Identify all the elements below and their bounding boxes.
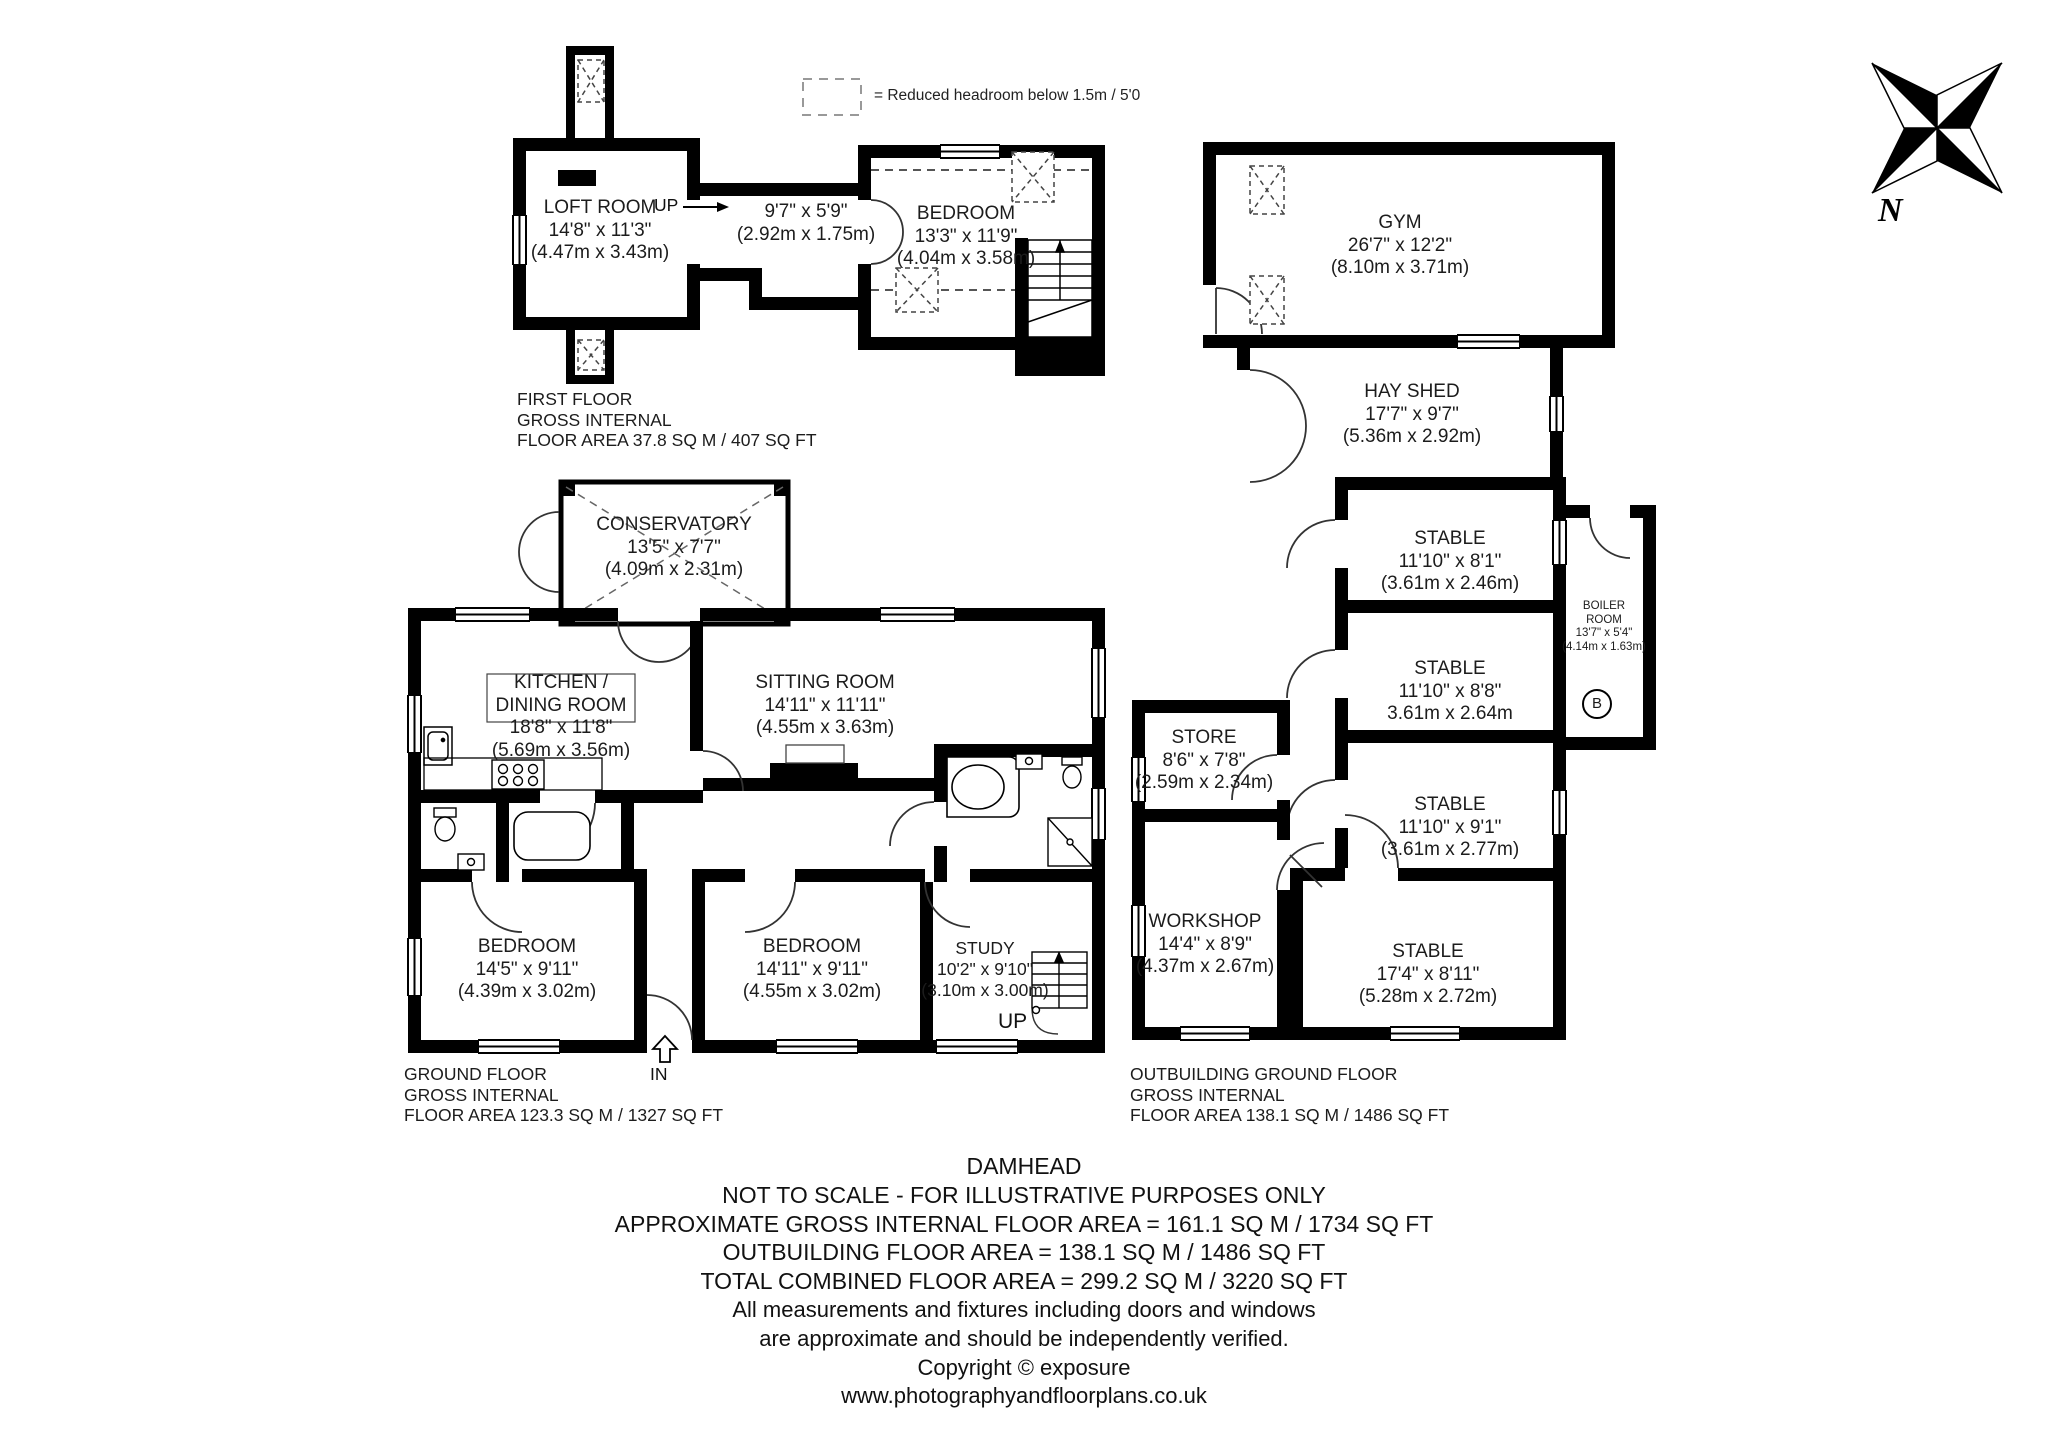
boiler-badge: B [1582,689,1612,719]
room-name: SITTING ROOM [755,672,894,695]
room-name: STABLE [1381,794,1519,817]
room-dims-ft: 11'10" x 8'8" [1387,681,1513,704]
disclaimer-measurements-2: are approximate and should be independen… [0,1325,2048,1354]
room-name: HAY SHED [1343,381,1481,404]
gross-internal: GROSS INTERNAL [404,1085,723,1106]
floor-area: FLOOR AREA 123.3 SQ M / 1327 SQ FT [404,1105,723,1126]
wall-segment [605,46,614,138]
floor-name: OUTBUILDING GROUND FLOOR [1130,1064,1449,1085]
roof-window-icon [1250,276,1284,324]
window [1092,648,1105,718]
window [936,1040,1018,1053]
wall-segment [1237,348,1250,370]
approx-floor-area: APPROXIMATE GROSS INTERNAL FLOOR AREA = … [0,1210,2048,1239]
wall-segment [1602,142,1615,348]
sink-icon [458,854,484,870]
window [455,608,530,621]
up-label: UP [998,1010,1027,1034]
wall-segment [1015,350,1105,376]
room-dims-ft: 14'11" x 9'11" [743,959,881,982]
room-dims-ft: 11'10" x 9'1" [1381,817,1519,840]
wall-segment [1335,743,1348,780]
hearth-outline [786,745,844,763]
room-dims-m: (2.92m x 1.75m) [737,224,875,247]
wall-segment [605,330,614,380]
window [1553,790,1566,835]
kitchen-dining-label: KITCHEN / DINING ROOM 18'8" x 11'8" (5.6… [492,672,630,762]
footer-text: DAMHEAD NOT TO SCALE - FOR ILLUSTRATIVE … [0,1152,2048,1411]
wall-segment [1550,348,1563,396]
wall-segment [934,744,947,802]
window [1553,520,1566,565]
room-name: KITCHEN / [492,672,630,695]
wall-segment [1335,600,1566,613]
wall-segment [1277,800,1290,840]
entrance-arrow-icon [653,1036,677,1062]
wall-segment [692,869,745,882]
window [1390,1027,1460,1040]
window [880,608,955,621]
room-dims-m: (4.55m x 3.02m) [743,981,881,1004]
floor-area: FLOOR AREA 138.1 SQ M / 1486 SQ FT [1130,1105,1449,1126]
fireplace-block [770,763,858,787]
door-arc [472,882,522,932]
room-dims-m: 3.61m x 2.64m [1387,703,1513,726]
floor-name: GROUND FLOOR [404,1064,723,1085]
room-name: STUDY [921,938,1048,959]
room-name: LOFT ROOM [531,197,669,220]
workshop-label: WORKSHOP 14'4" x 8'9" (4.37m x 2.67m) [1136,911,1274,979]
room-name: BOILER [1562,600,1646,614]
room-dims-ft: 26'7" x 12'2" [1331,235,1469,258]
wall-segment [1335,698,1348,730]
room-dims-ft: 11'10" x 8'1" [1381,551,1519,574]
boiler-room-label: BOILER ROOM 13'7" x 5'4" (4.14m x 1.63m) [1562,600,1646,654]
door-arc [1250,426,1306,482]
reduced-headroom-legend: = Reduced headroom below 1.5m / 5'0 [874,87,1140,105]
room-name: CONSERVATORY [596,514,752,537]
wall-segment [1203,335,1457,348]
room-dims-ft: 17'4" x 8'11" [1359,964,1497,987]
door-arc [618,621,659,662]
room-dims-m: (5.36m x 2.92m) [1343,426,1481,449]
toilet-icon [434,808,456,841]
stable4-label: STABLE 17'4" x 8'11" (5.28m x 2.72m) [1359,941,1497,1009]
wall-segment [1277,700,1290,755]
room-name: BEDROOM [743,936,881,959]
door-arc [519,512,559,552]
wall-segment [1335,613,1348,650]
room-dims-m: (4.39m x 3.02m) [458,981,596,1004]
room-name: BEDROOM [458,936,596,959]
wall-segment [595,790,703,803]
wall-segment [1092,145,1105,350]
room-dims-m: (3.10m x 3.00m) [921,980,1048,1001]
outbuilding-area-label: OUTBUILDING GROUND FLOOR GROSS INTERNAL … [1130,1064,1449,1126]
floor-name: FIRST FLOOR [517,389,817,410]
door-arc [1590,518,1630,558]
roof-window-icon [896,268,938,312]
wall-segment [1335,477,1566,490]
stable2-label: STABLE 11'10" x 8'8" 3.61m x 2.64m [1387,658,1513,726]
room-name: DINING ROOM [492,695,630,718]
room-dims-m: (4.37m x 2.67m) [1136,956,1274,979]
room-dims-ft: 10'2" x 9'10" [921,959,1048,980]
loft-room-label: LOFT ROOM 14'8" x 11'3" (4.47m x 3.43m) [531,197,669,265]
door-arc [519,552,559,592]
room-dims-ft: 13'3" x 11'9" [897,226,1035,249]
window [1457,335,1520,348]
wall-segment [687,138,700,200]
room-dims-m: (5.69m x 3.56m) [492,740,630,763]
door-arc [745,882,795,932]
room-dims-m: (4.04m x 3.58m) [897,248,1035,271]
reduced-headroom-symbol [803,79,861,115]
bedroom1-label: BEDROOM 14'5" x 9'11" (4.39m x 3.02m) [458,936,596,1004]
wall-segment [421,869,472,882]
window [776,1040,858,1053]
wall-segment [858,145,871,200]
wall-segment [566,46,575,138]
wall-segment [700,183,870,196]
property-name: DAMHEAD [0,1152,2048,1181]
landing-label: 9'7" x 5'9" (2.92m x 1.75m) [737,201,875,246]
room-dims-m: (4.09m x 2.31m) [596,559,752,582]
room-dims-ft: 13'7" x 5'4" [1562,627,1646,641]
room-name: WORKSHOP [1136,911,1274,934]
window [408,938,421,996]
wall-segment [692,1040,1105,1053]
bathtub-icon [514,812,590,860]
window [1550,396,1563,432]
stable1-label: STABLE 11'10" x 8'1" (3.61m x 2.46m) [1381,528,1519,596]
window [1180,1027,1250,1040]
window [408,695,421,753]
north-label: N [1878,192,1903,230]
wall-segment [858,337,1105,350]
window [940,145,1000,158]
compass-rose-icon [1872,63,2002,193]
bedroom2-label: BEDROOM 14'11" x 9'11" (4.55m x 3.02m) [743,936,881,1004]
up-arrow [683,202,729,212]
toilet-icon [1062,757,1082,788]
store-label: STORE 8'6" x 7'8" (2.59m x 2.34m) [1135,727,1273,795]
room-name: GYM [1331,212,1469,235]
roof-window-icon [1012,152,1054,202]
room-dims-ft: 9'7" x 5'9" [737,201,875,224]
wall-segment [934,846,947,882]
door-arc [1250,370,1306,426]
hay-shed-label: HAY SHED 17'7" x 9'7" (5.36m x 2.92m) [1343,381,1481,449]
wall-segment [1520,335,1615,348]
sitting-room-label: SITTING ROOM 14'11" x 11'11" (4.55m x 3.… [755,672,894,740]
room-name: STABLE [1387,658,1513,681]
kitchen-sink-icon [424,727,452,765]
room-dims-m: (4.55m x 3.63m) [755,717,894,740]
room-name: STABLE [1359,941,1497,964]
wall-segment [692,882,705,1040]
wall-segment [566,330,575,380]
room-name: STORE [1135,727,1273,750]
wall-segment [687,264,700,330]
wall-segment [1335,828,1348,868]
first-floor-area-label: FIRST FLOOR GROSS INTERNAL FLOOR AREA 37… [517,389,817,451]
window [1092,788,1105,840]
website-url: www.photographyandfloorplans.co.uk [0,1382,2048,1411]
disclaimer-measurements-1: All measurements and fixtures including … [0,1296,2048,1325]
wall-segment [522,869,647,882]
wall-segment [1335,477,1348,520]
room-name: ROOM [1562,614,1646,628]
wall-segment [634,882,647,1040]
door-arc [890,802,934,846]
gross-internal: GROSS INTERNAL [517,410,817,431]
wall-segment [970,869,1105,882]
wall-segment [513,138,700,151]
room-dims-ft: 18'8" x 11'8" [492,717,630,740]
stove-icon [492,760,544,789]
total-floor-area: TOTAL COMBINED FLOOR AREA = 299.2 SQ M /… [0,1267,2048,1296]
room-name: STABLE [1381,528,1519,551]
roof-window-icon [1250,166,1284,214]
first-floor-bedroom-label: BEDROOM 13'3" x 11'9" (4.04m x 3.58m) [897,203,1035,271]
room-dims-ft: 14'4" x 8'9" [1136,934,1274,957]
outbuilding-floor-area: OUTBUILDING FLOOR AREA = 138.1 SQ M / 14… [0,1238,2048,1267]
door-arc [1287,780,1335,828]
room-dims-ft: 14'5" x 9'11" [458,959,596,982]
disclaimer-scale: NOT TO SCALE - FOR ILLUSTRATIVE PURPOSES… [0,1181,2048,1210]
wall-segment [421,790,540,803]
wall-segment [690,621,703,751]
floor-area: FLOOR AREA 37.8 SQ M / 407 SQ FT [517,430,817,451]
window [478,1040,560,1053]
up-label: UP [654,195,678,216]
shower-icon [1048,818,1092,866]
wall-segment [1335,730,1566,743]
study-label: STUDY 10'2" x 9'10" (3.10m x 3.00m) [921,938,1048,1001]
door-arc [647,995,692,1040]
room-dims-ft: 14'11" x 11'11" [755,695,894,718]
wall-segment [1203,142,1216,285]
floorplan-canvas: = Reduced headroom below 1.5m / 5'0 N LO… [0,0,2048,1447]
room-dims-ft: 13'5" x 7'7" [596,537,752,560]
room-dims-m: (8.10m x 3.71m) [1331,257,1469,280]
window [513,215,526,265]
wall-segment [496,803,509,882]
room-dims-ft: 17'7" x 9'7" [1343,404,1481,427]
chimney-breast [558,170,596,186]
chimney-vent-icon [578,60,604,102]
ground-floor-area-label: GROUND FLOOR GROSS INTERNAL FLOOR AREA 1… [404,1064,723,1126]
wall-segment [1132,700,1290,713]
sink-icon [1016,754,1042,769]
wall-segment [795,869,925,882]
copyright: Copyright © exposure [0,1354,2048,1383]
room-dims-m: (4.47m x 3.43m) [531,242,669,265]
gross-internal: GROSS INTERNAL [1130,1085,1449,1106]
wall-segment [513,317,700,330]
wall-segment [1203,142,1615,155]
corner-bath-icon [947,757,1019,817]
wall-segment [1290,868,1303,1040]
wall-segment [1553,737,1656,750]
wall-segment [1553,505,1590,518]
wall-segment [749,297,861,310]
gym-label: GYM 26'7" x 12'2" (8.10m x 3.71m) [1331,212,1469,280]
door-arc [1287,650,1335,698]
chimney-vent-icon [578,340,604,370]
room-dims-m: (2.59m x 2.34m) [1135,772,1273,795]
conservatory-label: CONSERVATORY 13'5" x 7'7" (4.09m x 2.31m… [596,514,752,582]
door-arc [1287,520,1335,568]
wall-segment [1277,890,1290,1040]
room-dims-m: (5.28m x 2.72m) [1359,986,1497,1009]
room-dims-m: (3.61m x 2.46m) [1381,573,1519,596]
room-dims-ft: 8'6" x 7'8" [1135,750,1273,773]
room-dims-m: (4.14m x 1.63m) [1562,641,1646,655]
room-dims-ft: 14'8" x 11'3" [531,220,669,243]
room-name: BEDROOM [897,203,1035,226]
wall-segment [1132,809,1290,822]
room-dims-m: (3.61m x 2.77m) [1381,839,1519,862]
wall-segment [1398,868,1566,881]
stable3-label: STABLE 11'10" x 9'1" (3.61m x 2.77m) [1381,794,1519,862]
staircase [1028,240,1092,337]
